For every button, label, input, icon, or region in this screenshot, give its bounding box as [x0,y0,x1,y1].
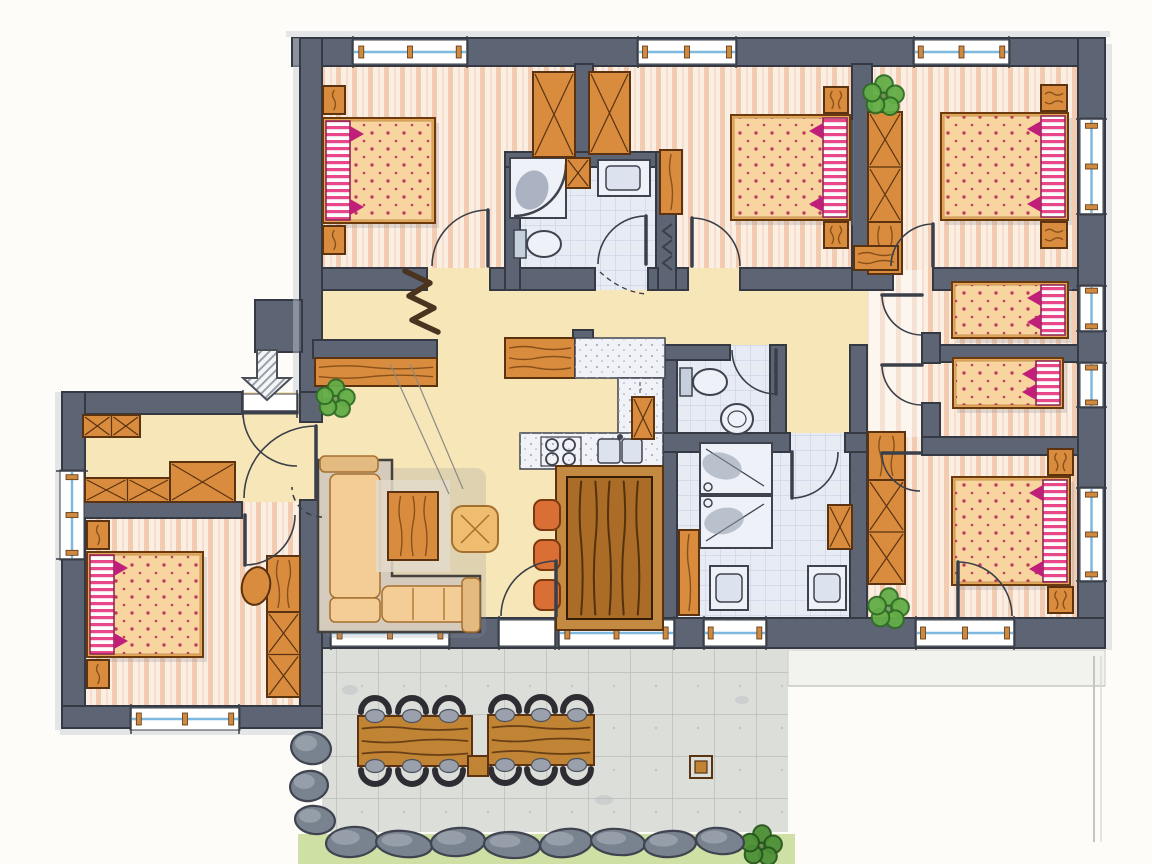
wall-washroom-left [663,452,677,618]
bed-3-nightstand-bottom [1041,222,1067,248]
bed-2-nightstand-top [824,87,848,113]
sofa-armrest-top [320,456,378,472]
window-top-2 [637,36,737,68]
bed-7-nightstand-bottom [87,660,109,688]
wardrobe-bed1 [533,72,575,157]
wall-wing-top [62,392,242,414]
wall-halo-left [293,38,299,394]
cabinet-washroom [828,505,852,549]
wall-halo-top [286,31,1110,37]
bed-5 [953,358,1067,413]
bed-3-nightstand-top [1041,85,1067,111]
corridor-right-floor [867,270,922,455]
wall-halo-right [1106,44,1112,650]
wc-corridor-floor [786,345,850,433]
bed-6-nightstand-bottom [1048,587,1073,613]
wall-bath1-bottom-a [520,268,595,290]
bed-4 [952,282,1072,343]
wall-wc-corridor-east [850,345,867,433]
wardrobe-panel-bed7 [267,556,300,612]
floor-plan [0,0,1152,864]
terrace-speckle-1 [342,685,358,695]
kitchen-faucet [617,434,623,440]
dining-chair-1 [534,500,560,530]
wall-bath1-bottom-b [648,268,658,290]
terrace-door-threshold [498,616,556,650]
dining-table [567,477,652,619]
wall-wc-top [663,345,730,360]
window-right-4 [1076,487,1107,582]
wall-bed2-bottom-b [740,268,852,290]
coffee-table [388,492,438,560]
window-bottom-bed6 [915,616,1015,650]
kitchen-counter-top-dots [575,338,665,378]
basin-wc [721,404,753,434]
sofa-armrest-right [462,578,480,632]
sofa-cushion-corner [330,598,380,622]
bed-2 [731,115,854,225]
bed-3 [941,113,1072,225]
window-right-1 [1076,118,1107,215]
kitchen-counter-wood [505,338,575,378]
wardrobe-panel-bed2 [660,150,682,214]
sofa-cushion-bottom [382,586,474,622]
wardrobe-entry-tall [170,462,235,502]
bed-6 [952,477,1074,590]
wardrobe-bed6 [868,480,905,584]
wardrobe-bed2 [589,72,630,154]
bed-6-nightstand-top [1048,449,1073,475]
terrace-speckle-3 [735,696,749,704]
wardrobe-panel-bed6 [868,432,905,480]
terrace-table-1 [358,716,472,766]
bed-1 [323,118,439,228]
wall-corridor-east-a [922,333,940,363]
bed-2-nightstand-bottom [824,222,848,248]
half-wall-hall [313,340,437,358]
wardrobe-bed7 [267,612,300,697]
window-bottom-washroom [703,616,767,650]
window-right-3 [1076,362,1107,408]
wall-wc-right [770,345,786,437]
window-top-3 [913,36,1010,68]
wall-corridor-east-b [922,403,940,437]
toilet-wc-tank [680,368,692,396]
bed-7 [87,552,207,662]
toilet-wc-bowl [693,369,727,395]
cabinet-bath1 [566,158,590,188]
window-top-1 [352,36,468,68]
terrace-table-2 [488,715,594,765]
wardrobe-bed3 [868,112,902,222]
terrace-speckle-2 [595,795,613,805]
wall-wing-inner [62,502,242,518]
wardrobe-entry-row [85,478,170,502]
cabinet-kitchen [632,397,654,439]
bed-1-nightstand-top [323,86,345,114]
bed-1-nightstand-bottom [323,226,345,254]
wall-halo-wing-left [55,392,61,730]
window-right-2 [1076,285,1107,332]
toilet-bath1-tank [514,230,526,258]
cabinet-entry-upper [83,415,140,437]
kitchen-sink-left [598,439,620,463]
sink-bath1 [606,166,640,190]
terrace-stool [468,756,488,776]
kitchen-sink-right [622,439,642,463]
wall-bed2-bottom-a [676,268,688,290]
wall-outer-left [300,38,322,392]
floor-plan-svg [0,0,1152,864]
toilet-bath1-bowl [527,231,561,257]
washroom-bench [679,530,699,615]
sink-washroom-right [814,574,840,602]
bed-7-nightstand-top [87,521,109,549]
sink-washroom-left [716,574,742,602]
gravel-path [788,650,1105,686]
terrace-planter-inner [695,761,707,773]
window-wing-left [56,470,88,560]
wall-wash-divider-b [845,433,867,452]
sofa-cushion-left [330,474,380,598]
window-wing-bottom [130,704,240,734]
